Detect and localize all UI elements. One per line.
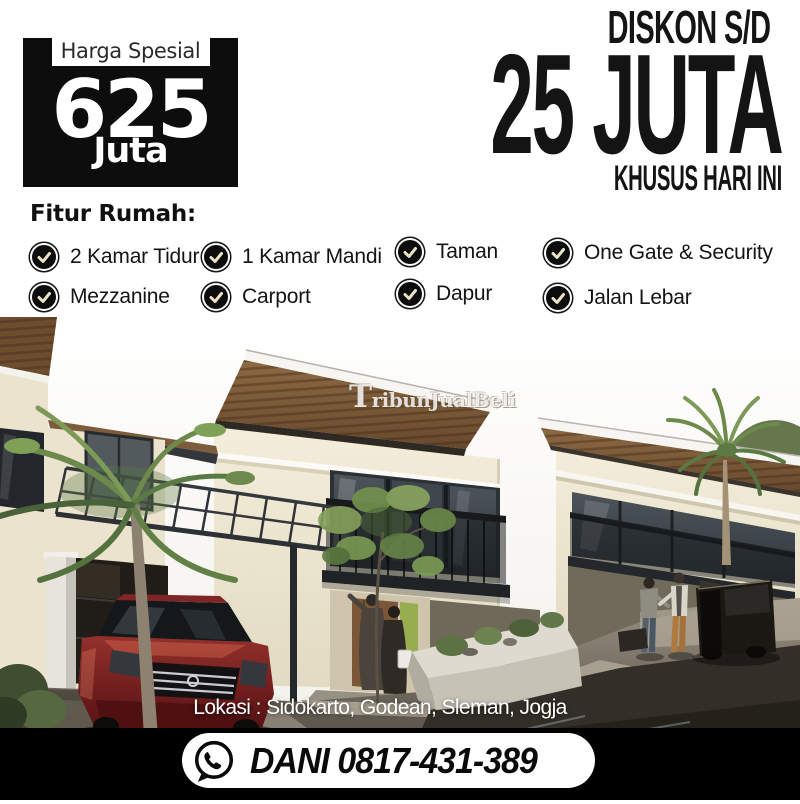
feature-label: Taman [436, 240, 498, 264]
check-icon [204, 285, 228, 309]
location-caption: Lokasi : Sidokarto, Godean, Sleman, Jogj… [0, 696, 760, 720]
feature-item: 1 Kamar Mandi [200, 241, 382, 272]
check-icon [546, 286, 570, 310]
feature-item: Dapur [394, 278, 492, 309]
feature-item: Mezzanine [28, 281, 170, 312]
feature-label: Dapur [436, 282, 492, 306]
check-icon [398, 240, 422, 264]
watermark: TribunJualBeli [349, 379, 516, 415]
feature-label: Jalan Lebar [584, 286, 692, 310]
contact-pill[interactable]: DANI 0817-431-389 [182, 733, 595, 788]
feature-item: Jalan Lebar [542, 282, 692, 313]
feature-item: 2 Kamar Tidur [28, 241, 199, 272]
feature-label: 1 Kamar Mandi [242, 245, 382, 269]
check-icon [32, 285, 56, 309]
feature-label: Mezzanine [70, 285, 170, 309]
feature-label: Carport [242, 285, 311, 309]
discount-line-2: 25 JUTA [491, 34, 782, 176]
feature-item: Carport [200, 281, 311, 312]
features-heading: Fitur Rumah: [30, 201, 196, 227]
check-icon [32, 245, 56, 269]
discount-headline: DISKON S/D 25 JUTA KHUSUS HARI INI [362, 0, 782, 210]
price-unit: Juta [23, 134, 238, 169]
check-icon [204, 245, 228, 269]
feature-label: 2 Kamar Tidur [70, 245, 199, 269]
feature-item: Taman [394, 236, 498, 267]
contact-phone: DANI 0817-431-389 [250, 740, 537, 782]
feature-item: One Gate & Security [542, 237, 773, 268]
whatsapp-icon [191, 738, 237, 784]
check-icon [398, 282, 422, 306]
price-badge-tab: Harga Spesial [52, 25, 210, 66]
check-icon [546, 241, 570, 265]
price-badge: Harga Spesial 625 Juta [23, 38, 238, 187]
feature-label: One Gate & Security [584, 241, 773, 265]
discount-line-3: KHUSUS HARI INI [614, 161, 782, 196]
price-badge-label: Harga Spesial [61, 39, 201, 63]
